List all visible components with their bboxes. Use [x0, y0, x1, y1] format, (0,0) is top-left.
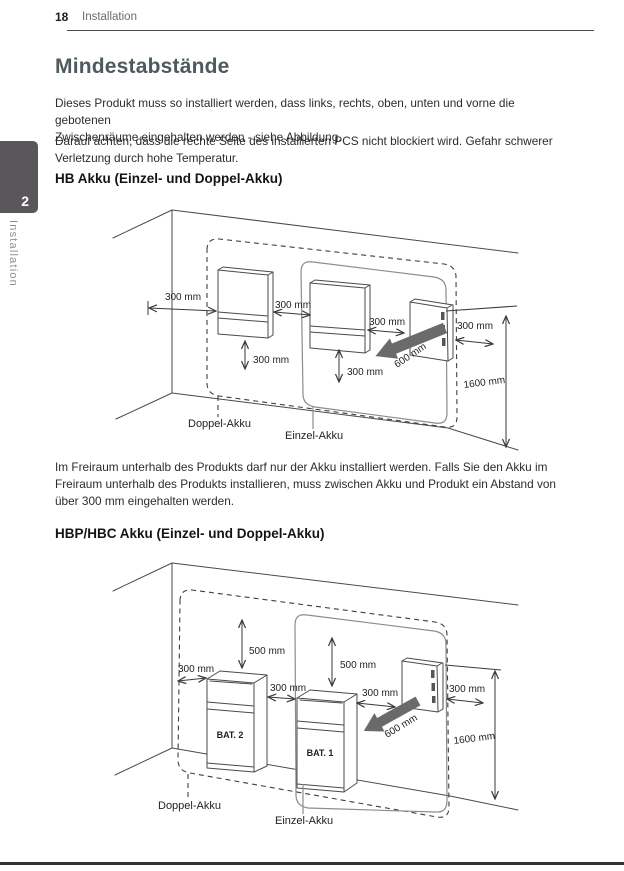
- diagram-hbp-hbc-akku: BAT. 2 BAT. 1 500 mm 500 m: [100, 560, 520, 845]
- dim-label-gap2: 300 mm: [369, 317, 405, 328]
- dim-label-height: 1600 mm: [463, 375, 506, 391]
- dim-label-below2: 300 mm: [347, 367, 383, 378]
- chapter-tab: 2: [0, 141, 38, 213]
- label-bat1: BAT. 1: [307, 748, 334, 758]
- diagram-hb-akku: 300 mm 300 mm 300 mm 300 mm 300 mm 300 m…: [100, 198, 520, 458]
- dim-label-below1: 300 mm: [253, 355, 289, 366]
- text-line: Dieses Produkt muss so installiert werde…: [55, 95, 570, 129]
- header-rule: [67, 30, 594, 31]
- dim-label-height: 1600 mm: [453, 731, 496, 747]
- page-number: 18: [55, 10, 68, 24]
- note-paragraph: Im Freiraum unterhalb des Produkts darf …: [55, 459, 570, 510]
- dim-label-left: 300 mm: [165, 292, 201, 303]
- text-line: über 300 mm eingehalten werden.: [55, 493, 570, 510]
- chapter-vertical-label: Installation: [7, 220, 19, 287]
- text-line: Verletzung durch hohe Temperatur.: [55, 150, 570, 167]
- intro-paragraph-2: Darauf achten, dass die rechte Seite des…: [55, 133, 570, 167]
- label-einzel-akku: Einzel-Akku: [275, 815, 333, 827]
- dim-label-gap1: 300 mm: [270, 683, 306, 694]
- label-bat2: BAT. 2: [217, 730, 244, 740]
- text-line: Darauf achten, dass die rechte Seite des…: [55, 133, 570, 150]
- page-title: Mindestabstände: [55, 55, 230, 79]
- dim-label-top2: 500 mm: [340, 660, 376, 671]
- battery-module-1: [218, 267, 273, 338]
- text-line: Freiraum unterhalb des Produkts installi…: [55, 476, 570, 493]
- section-heading-hb: HB Akku (Einzel- und Doppel-Akku): [55, 171, 283, 186]
- label-doppel-akku: Doppel-Akku: [188, 418, 251, 430]
- battery-bat2: BAT. 2: [207, 671, 267, 772]
- manual-page: 18 Installation 2 Installation Mindestab…: [0, 0, 624, 871]
- label-einzel-akku: Einzel-Akku: [285, 430, 343, 442]
- dim-label-top1: 500 mm: [249, 646, 285, 657]
- dim-label-left: 300 mm: [178, 664, 214, 675]
- dim-label-right: 300 mm: [457, 321, 493, 332]
- battery-bat1: BAT. 1: [297, 690, 357, 792]
- dim-label-right: 300 mm: [449, 684, 485, 695]
- section-heading-hbp: HBP/HBC Akku (Einzel- und Doppel-Akku): [55, 526, 325, 541]
- label-doppel-akku: Doppel-Akku: [158, 800, 221, 812]
- header-section-label: Installation: [82, 11, 137, 23]
- text-line: Im Freiraum unterhalb des Produkts darf …: [55, 459, 570, 476]
- chapter-number: 2: [21, 193, 29, 209]
- dim-label-gap2: 300 mm: [362, 688, 398, 699]
- dim-label-gap1: 300 mm: [275, 300, 311, 311]
- footer-rule: [0, 862, 624, 865]
- battery-module-2: [310, 280, 370, 353]
